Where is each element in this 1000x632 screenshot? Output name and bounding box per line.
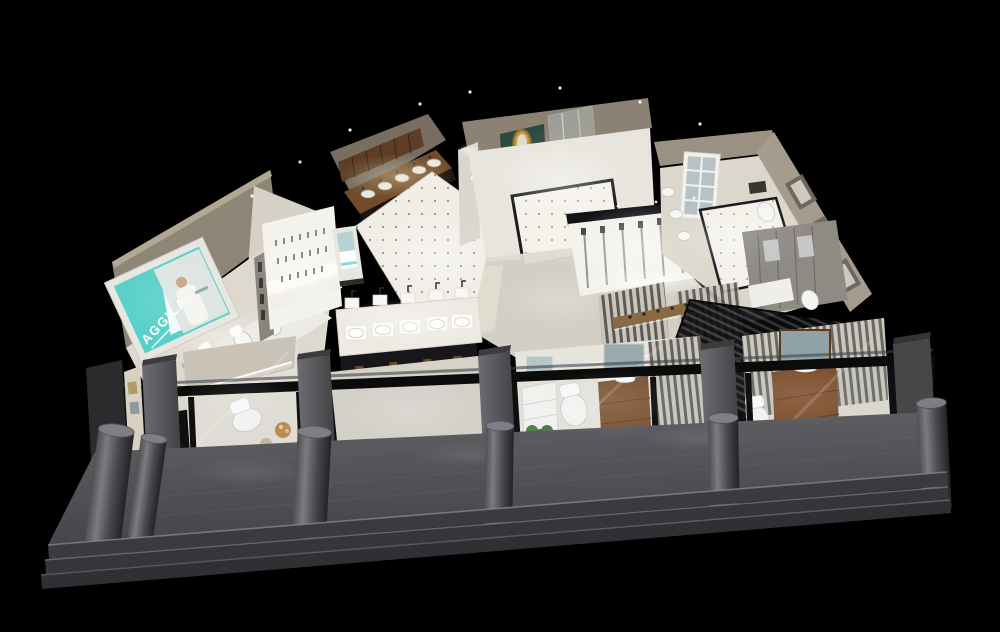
showroom-render: AGGILA — [0, 0, 1000, 632]
render-canvas: AGGILA — [0, 0, 1000, 632]
